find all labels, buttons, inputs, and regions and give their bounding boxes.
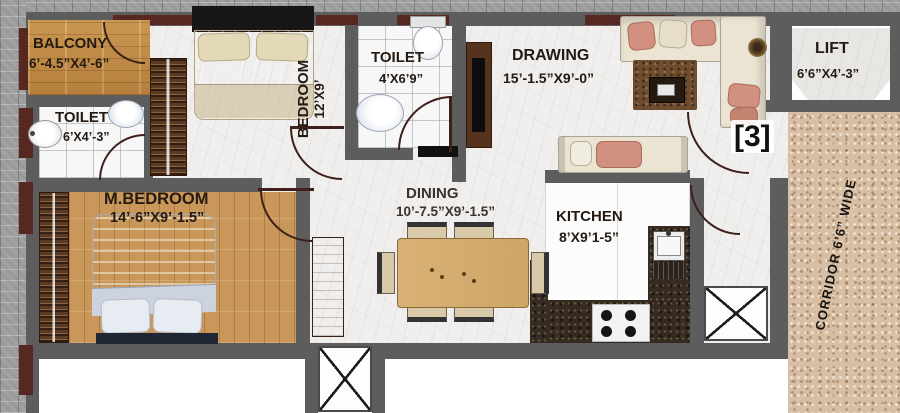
wash-basin-icon (108, 100, 144, 128)
window-mbedroom-left (19, 182, 33, 234)
floor-plan: BALCONY 6’-4.5”X4’-6” TOILET 6’X4’-3” BE… (0, 0, 900, 413)
kitchen-label: KITCHEN (556, 209, 623, 226)
bench-pillow (570, 141, 592, 166)
pillow (100, 298, 150, 334)
wall-shaft-left (305, 343, 318, 413)
toilet1-size: 6’X4’-3” (63, 131, 110, 145)
dining-cabinet (312, 237, 344, 337)
dining-label: DINING (406, 186, 459, 203)
sofa-pillow (627, 21, 657, 52)
table-decor-icon (430, 268, 434, 272)
window-bottom-left (19, 345, 33, 395)
sofa-pillow (658, 19, 688, 49)
bench-pillow (596, 141, 642, 168)
lift-label: LIFT (815, 40, 849, 58)
duct-shaft-kitchen (704, 286, 768, 341)
lift-size: 6’6”X4’-3” (797, 67, 859, 81)
bedroom-wardrobe (150, 58, 187, 176)
dining-size: 10’-7.5”X9’-1.5” (396, 205, 495, 220)
mbedroom-label: M.BEDROOM (104, 190, 209, 208)
toilet2-size: 4’X6’9” (379, 72, 423, 86)
bedroom-label: BEDROOM 12’X9’ (296, 29, 340, 169)
unit-number-label: [3] (731, 120, 774, 153)
toilet2-label: TOILET (371, 50, 424, 67)
mbedroom-door-leaf (258, 188, 314, 191)
master-bed-footboard (96, 333, 218, 344)
mbedroom-size: 14’-6”X9’-1.5” (110, 211, 204, 227)
sofa-pillow (727, 82, 761, 109)
balcony-size: 6’-4.5”X4’-6” (29, 57, 109, 72)
bedroom-name: BEDROOM (296, 29, 313, 169)
wash-basin-icon (356, 94, 404, 132)
duct-shaft-bottom (318, 346, 372, 412)
wall-unit-right-upper (770, 12, 792, 112)
stove-burners-icon (601, 310, 612, 321)
kitchen-sink-basin (657, 236, 681, 256)
dining-chair (531, 252, 549, 294)
wall-bottom (26, 343, 786, 359)
kitchen-size: 8’X9’1-5” (559, 230, 619, 245)
tv-screen-icon (472, 58, 485, 132)
window-hall-top (316, 15, 358, 25)
wall-lift-bottom (756, 100, 900, 112)
wall-bedroom-toilet2 (345, 14, 358, 154)
kitchen-faucet-icon (666, 231, 671, 236)
sofa-pillow (690, 19, 717, 47)
toilet2-door-leaf (449, 96, 452, 152)
side-table-plant-icon (748, 38, 767, 57)
pillow (152, 298, 202, 334)
wall-shaft-right (372, 343, 385, 413)
wall-unit-right-lower (770, 178, 788, 359)
mbedroom-wardrobe (39, 192, 69, 343)
kitchen-cabinet-door (653, 262, 685, 279)
tap-icon (30, 131, 35, 136)
dining-table (397, 238, 529, 308)
balcony-label: BALCONY (33, 36, 107, 53)
pillow (198, 32, 251, 62)
coffee-table-tray-icon (657, 84, 675, 96)
wall-lift-right (890, 12, 900, 112)
dining-chair (377, 252, 395, 294)
drawing-size: 15’-1.5”X9’-0” (503, 71, 594, 86)
toilet1-label: TOILET (55, 110, 108, 127)
stove (592, 304, 650, 342)
bedroom-size: 12’X9’ (313, 29, 328, 169)
drawing-label: DRAWING (512, 47, 589, 65)
